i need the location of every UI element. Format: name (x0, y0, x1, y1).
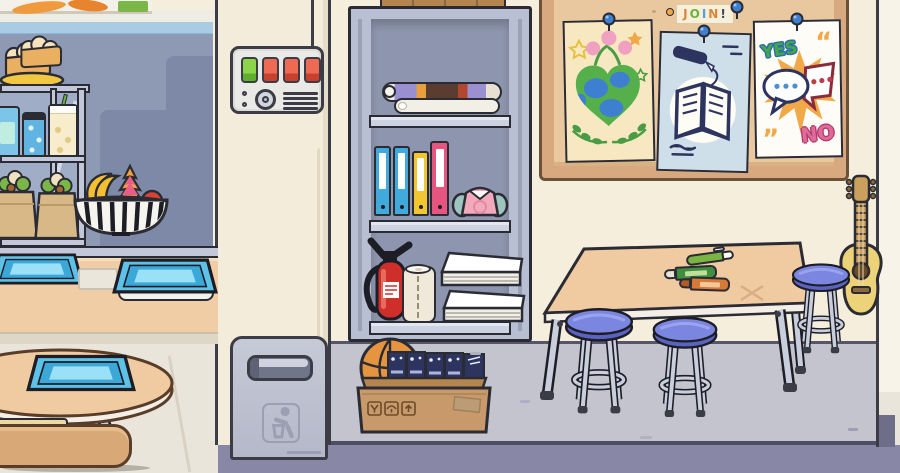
panel-grille-line (283, 97, 318, 100)
panel-button-green[interactable] (241, 57, 258, 83)
wrap-bag[interactable] (0, 168, 38, 242)
cup-lid (50, 106, 76, 114)
binder-hole (381, 205, 385, 209)
table-left-foot (540, 391, 554, 400)
stool[interactable] (786, 262, 856, 362)
right-baseboard-block (878, 415, 895, 447)
extinguisher-lever (371, 241, 384, 256)
panel-button-red-1[interactable] (262, 57, 279, 83)
floor-scuff (520, 400, 530, 403)
stool-seat (793, 264, 849, 285)
guitar-neck (855, 198, 867, 264)
trash-slot[interactable] (247, 355, 313, 381)
fruit-bowl[interactable] (72, 164, 170, 236)
pushpin-icon (602, 12, 616, 32)
jar-label (0, 122, 15, 144)
binder-hole (438, 205, 442, 209)
marker-body (690, 276, 730, 291)
juice-cup[interactable] (48, 104, 78, 158)
food-tray[interactable] (26, 352, 136, 394)
paper-stack-bottom (444, 291, 524, 321)
vegetable-poster[interactable] (0, 0, 152, 14)
join-letter-o: O (690, 8, 701, 20)
binder-pink[interactable] (430, 141, 449, 216)
join-letter-bang: ! (720, 8, 726, 20)
trash-can[interactable] (230, 336, 328, 460)
binder-label (436, 149, 444, 187)
earth-heart-icon (573, 64, 640, 126)
join-sign[interactable]: J O I N ! (676, 4, 734, 24)
pen-cap (721, 250, 734, 261)
binder-label (398, 153, 405, 189)
book-stack (388, 352, 484, 380)
open-quote: “ (815, 27, 833, 57)
trash-label (262, 403, 300, 443)
tidyman-icon (264, 405, 298, 441)
food-tray[interactable] (112, 254, 218, 298)
roll-end-cap (383, 85, 396, 98)
bench[interactable] (0, 424, 132, 468)
panel-led-dot (242, 91, 247, 96)
yes-no-poster[interactable]: YES “ „ NO (753, 19, 843, 159)
paper-towel-roll[interactable] (402, 266, 436, 323)
binder-blue-1[interactable] (374, 146, 391, 216)
panel-button-red-2[interactable] (283, 57, 300, 83)
bread-loaf (21, 37, 61, 68)
open-book-icon (676, 83, 729, 138)
roll-end-cap (398, 102, 407, 110)
box-tape (453, 397, 480, 413)
binder-hole (400, 205, 404, 209)
floor-scuff (640, 436, 652, 439)
floor-scuff (848, 428, 858, 431)
panel-knob[interactable] (255, 89, 276, 110)
trash-slot-highlight (252, 359, 308, 367)
stool[interactable] (646, 314, 724, 428)
pushpin-icon (697, 24, 711, 44)
panel-button-red-3[interactable] (304, 57, 321, 83)
join-letter-i: I (702, 8, 707, 20)
striped-bowl (75, 197, 167, 236)
pushpin-icon (790, 12, 804, 32)
tulip-icon (586, 30, 633, 64)
panel-wire (311, 0, 314, 50)
binder-label (379, 153, 386, 189)
storage-box[interactable] (348, 336, 500, 436)
control-panel[interactable] (230, 46, 324, 114)
binder-label (417, 158, 424, 191)
binder-blue-2[interactable] (393, 146, 410, 216)
greens-icon (118, 1, 148, 12)
can-top (24, 114, 44, 120)
trash-slot-cap (250, 358, 259, 378)
pink-bag[interactable] (452, 181, 508, 219)
display-shelf-mid-board (0, 155, 86, 163)
orange-marker[interactable] (679, 276, 731, 292)
join-letter-j: J (683, 8, 688, 20)
guitar-headstock (853, 176, 869, 202)
carrot-icon (68, 0, 109, 13)
no-text: NO (799, 120, 835, 148)
stool-seat (566, 309, 632, 334)
trash-base-line (287, 451, 321, 454)
panel-led-dot (242, 102, 247, 107)
towel-perforation (417, 276, 419, 318)
poster-roll-white[interactable] (394, 98, 500, 114)
pushpin-icon (730, 0, 744, 20)
table-right-foot (783, 383, 797, 392)
drink-jar[interactable] (0, 106, 20, 158)
cabinet-shelf-board (369, 220, 511, 233)
bowl-foot (112, 232, 130, 236)
binder-yellow[interactable] (412, 151, 429, 216)
bread-plate[interactable] (0, 38, 68, 88)
binder-hole (419, 205, 423, 209)
counter-base (0, 332, 218, 344)
earth-poster[interactable] (563, 19, 656, 163)
food-tray[interactable] (0, 250, 84, 288)
paper-stacks[interactable] (434, 246, 526, 324)
stool-seat (654, 318, 716, 341)
panel-grille-line (283, 102, 318, 105)
towel-top (405, 264, 431, 274)
panel-grille-line (283, 92, 318, 95)
speech-bubbles-icon (762, 61, 839, 124)
panel-grille-line (283, 107, 318, 110)
marker-label (700, 282, 720, 288)
orange-pin-icon (666, 8, 674, 16)
book-poster[interactable] (656, 31, 752, 173)
towel-core (415, 268, 422, 271)
cabinet-shelf-board (369, 115, 511, 128)
join-letter-n: N (708, 8, 719, 20)
stool[interactable] (558, 306, 640, 424)
floor-scuff (470, 352, 481, 355)
soda-can[interactable] (22, 112, 46, 158)
table-rear-foot (795, 366, 806, 374)
game-room-scene: YES “ „ NO J O I N ! (0, 0, 900, 473)
panel-knob-center (262, 96, 269, 103)
paper-stack-top (442, 253, 522, 285)
board-speck (652, 10, 656, 13)
carrot-icon (12, 0, 67, 16)
